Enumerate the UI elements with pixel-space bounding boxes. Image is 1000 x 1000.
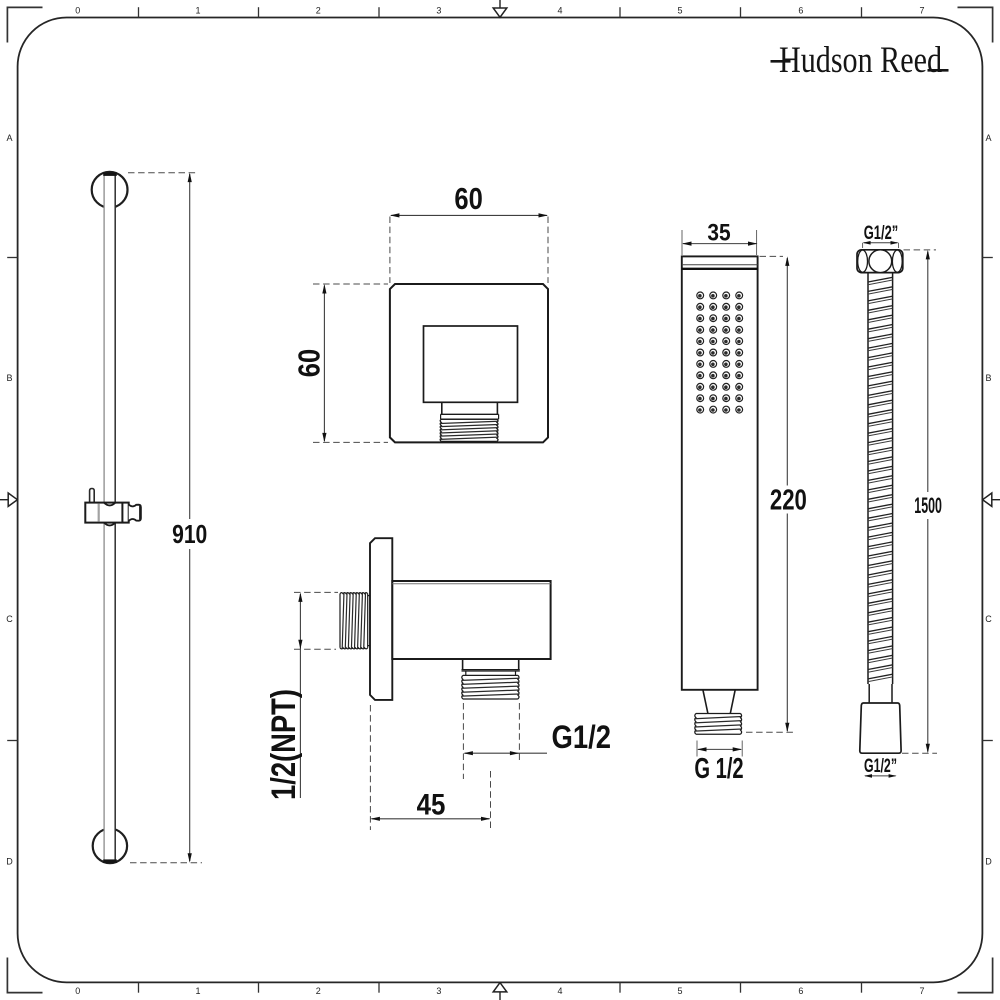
svg-text:G1/2”: G1/2” [864,755,897,777]
svg-text:5: 5 [677,986,682,996]
svg-text:1500: 1500 [914,493,942,518]
svg-text:910: 910 [172,521,207,549]
svg-text:60: 60 [454,181,482,216]
svg-text:3: 3 [436,986,441,996]
svg-text:G1/2”: G1/2” [864,222,899,244]
svg-text:6: 6 [798,6,803,16]
svg-text:2: 2 [316,986,321,996]
svg-text:220: 220 [770,485,807,517]
svg-text:1: 1 [195,6,200,16]
svg-text:5: 5 [677,6,682,16]
svg-text:0: 0 [75,986,80,996]
svg-text:B: B [6,373,12,383]
svg-text:D: D [6,856,13,866]
svg-text:B: B [985,373,991,383]
svg-text:C: C [985,614,992,624]
svg-text:Hudson Reed: Hudson Reed [779,39,942,80]
svg-text:7: 7 [919,986,924,996]
svg-text:1: 1 [195,986,200,996]
svg-text:4: 4 [557,6,562,16]
svg-text:G1/2: G1/2 [552,719,612,755]
svg-text:G 1/2: G 1/2 [694,753,743,785]
svg-text:4: 4 [557,986,562,996]
svg-text:A: A [6,133,12,143]
svg-text:6: 6 [798,986,803,996]
svg-text:0: 0 [75,6,80,16]
svg-text:60: 60 [292,349,327,377]
svg-text:7: 7 [919,6,924,16]
svg-text:D: D [985,856,992,866]
svg-text:A: A [985,133,991,143]
svg-text:35: 35 [707,220,730,247]
svg-text:3: 3 [436,6,441,16]
svg-text:2: 2 [316,6,321,16]
svg-text:C: C [6,614,13,624]
svg-text:1/2(NPT): 1/2(NPT) [265,689,303,800]
svg-text:45: 45 [417,788,446,821]
